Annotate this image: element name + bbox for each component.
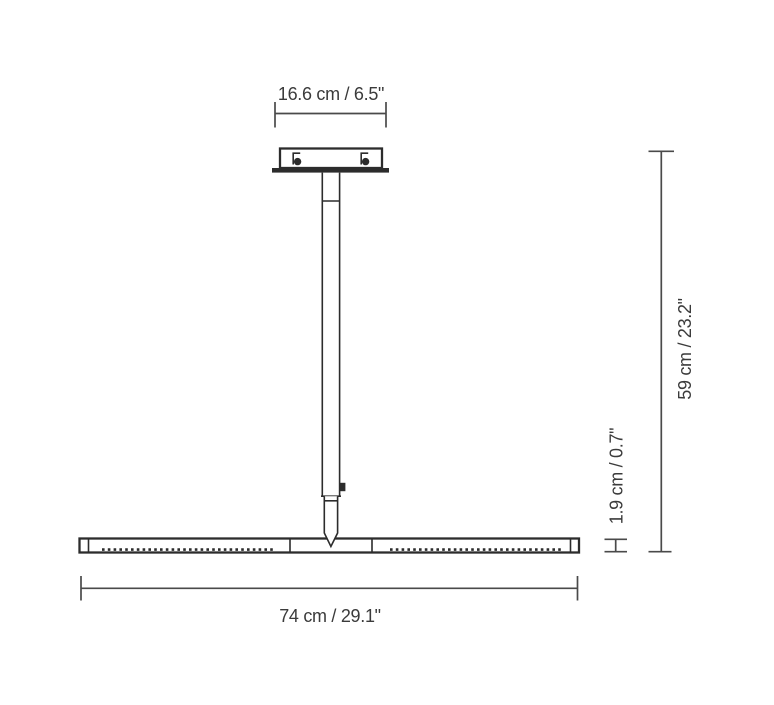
pendant-lamp-dimension-svg: 16.6 cm / 6.5" [0,0,774,705]
canopy-base-plate [272,168,389,173]
total-width-label: 74 cm / 29.1" [279,606,381,626]
canopy-width-dimension: 16.6 cm / 6.5" [275,84,386,128]
total-width-dimension: 74 cm / 29.1" [81,576,578,626]
screw-head-right [362,158,369,165]
dimension-drawing-canvas: 16.6 cm / 6.5" [0,0,774,705]
bar-height-label: 1.9 cm / 0.7" [607,428,627,525]
bar-height-dimension: 1.9 cm / 0.7" [605,428,628,552]
ceiling-canopy [272,149,389,173]
total-height-label: 59 cm / 23.2" [675,298,695,400]
suspension-stem [321,173,345,497]
total-height-dimension: 59 cm / 23.2" [649,151,696,551]
stem-set-screw [340,483,346,491]
canopy-width-label: 16.6 cm / 6.5" [278,84,384,104]
screw-head-left [294,158,301,165]
